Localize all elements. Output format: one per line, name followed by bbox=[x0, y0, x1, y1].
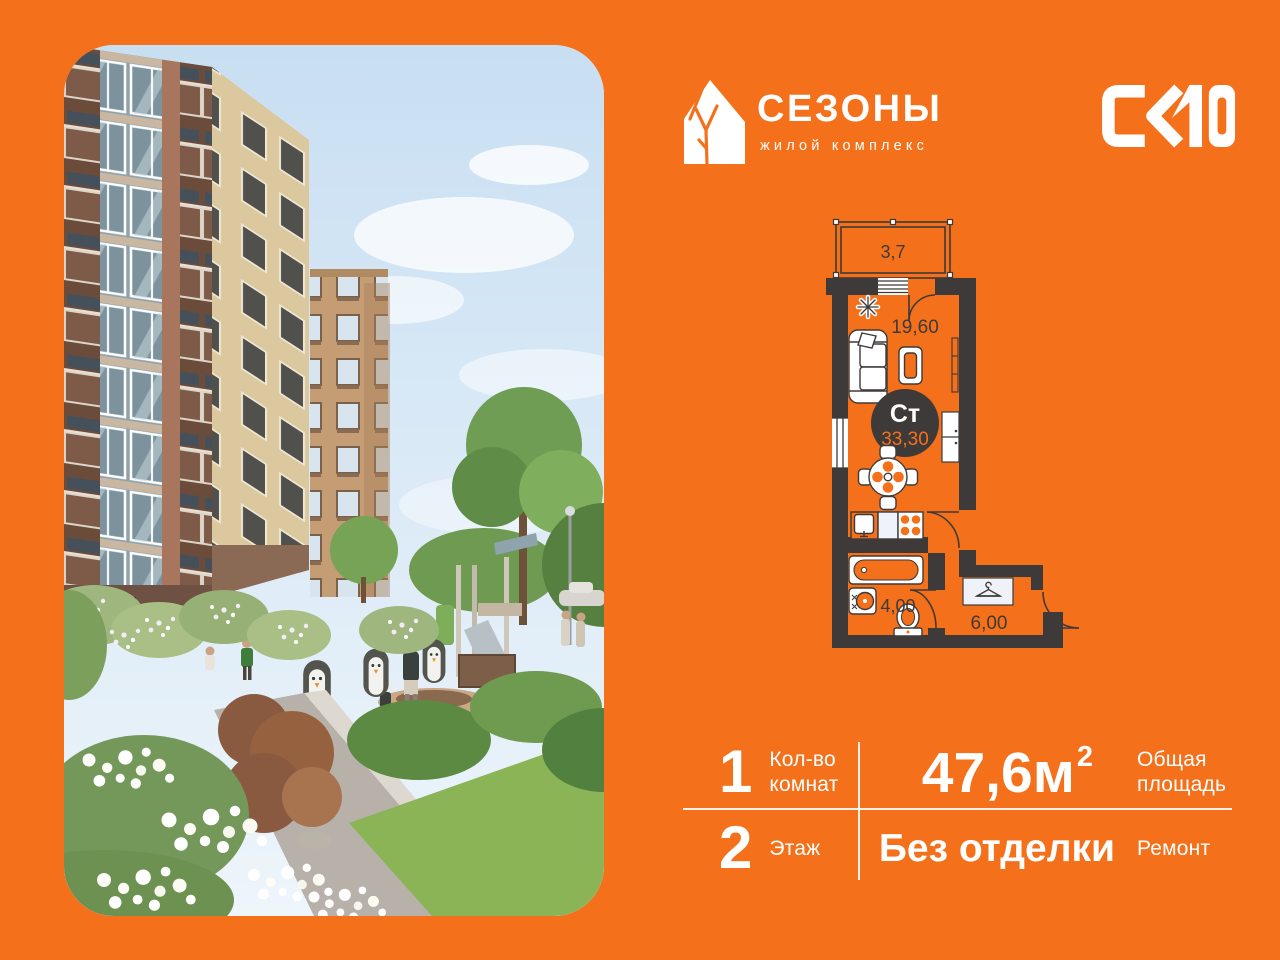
unit-type: Ст bbox=[890, 400, 920, 428]
brand-subtitle: жилой комплекс bbox=[760, 138, 928, 154]
specs-row-bottom: 2 Этаж Без отделки Ремонт bbox=[683, 816, 1239, 880]
area-label: Общая площадь bbox=[1137, 747, 1239, 797]
finish-label: Ремонт bbox=[1137, 836, 1239, 861]
area-superscript: 2 bbox=[1077, 741, 1093, 773]
brand-name: СЕЗОНЫ bbox=[757, 88, 942, 131]
rooms-value: 1 bbox=[719, 742, 752, 802]
balcony-area: 3,7 bbox=[880, 242, 905, 262]
courtyard-render-illustration bbox=[64, 45, 604, 916]
floor-label: Этаж bbox=[769, 836, 820, 861]
floor-value: 2 bbox=[719, 818, 752, 878]
house-icon bbox=[683, 78, 746, 166]
plant-icon bbox=[858, 297, 878, 317]
closet bbox=[942, 412, 959, 462]
wardrobe bbox=[963, 578, 1013, 605]
radiator bbox=[952, 338, 958, 392]
sofa bbox=[849, 330, 887, 403]
finish-value: Без отделки bbox=[879, 829, 1115, 868]
rooms-label: Кол-во комнат bbox=[769, 747, 858, 797]
specs-row-top: 1 Кол-во комнат 47,6м2 Общая площадь bbox=[683, 738, 1239, 806]
window-left bbox=[832, 418, 848, 468]
floor-cell: 2 Этаж bbox=[683, 816, 858, 880]
area-value: 47,6м2 bbox=[922, 743, 1093, 802]
floor-plan-drawing: Ст 33,30 bbox=[810, 200, 1100, 680]
finish-cell: Без отделки Ремонт bbox=[858, 816, 1239, 880]
side-table bbox=[899, 347, 922, 384]
listing-card: СЕЗОНЫ жилой комплекс bbox=[0, 0, 1280, 960]
developer-logo bbox=[1102, 83, 1238, 149]
hall-area: 6,00 bbox=[971, 613, 1008, 634]
area-cell: 47,6м2 Общая площадь bbox=[858, 738, 1239, 806]
specs-grid: 1 Кол-во комнат 47,6м2 Общая площадь 2 Э… bbox=[683, 738, 1239, 884]
building-photo bbox=[64, 45, 604, 916]
bath-area: 4,00 bbox=[880, 596, 915, 616]
window-top bbox=[878, 278, 908, 295]
floor-plan: Ст 33,30 bbox=[810, 200, 1100, 685]
rooms-cell: 1 Кол-во комнат bbox=[683, 738, 858, 806]
room-area: 19,60 bbox=[891, 317, 939, 338]
horizontal-divider bbox=[683, 808, 1232, 810]
area-number: 47,6м bbox=[922, 741, 1075, 805]
foreground-building bbox=[64, 45, 309, 657]
kitchen bbox=[851, 512, 923, 539]
